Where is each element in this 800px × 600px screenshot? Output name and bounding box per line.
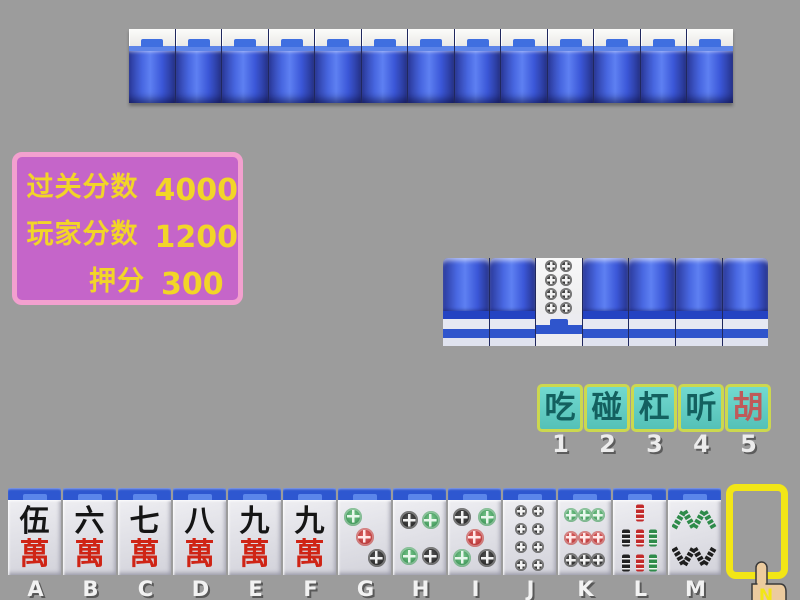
wan-bottom-char: 萬 [228, 540, 281, 570]
black-dot [545, 274, 557, 286]
green-dot [564, 508, 578, 522]
meld-tile-back [443, 258, 490, 346]
hotkey-number-1: 1 [537, 430, 584, 458]
red-bamboo-stick [636, 504, 644, 521]
opponent-tile-back [176, 29, 223, 103]
green-dot [400, 547, 418, 565]
opponent-tile-back [129, 29, 176, 103]
meld-tile-back [490, 258, 537, 346]
red-dot [564, 531, 578, 545]
black-dot [532, 541, 544, 553]
wan-top-char: 九 [283, 507, 336, 537]
mahjong-game-screen: 过关分数 4000 玩家分数 1200 押分 300 吃碰杠听胡 12345 伍… [0, 0, 800, 600]
pass-score-value: 4000 [155, 176, 239, 206]
opponent-tile-back [548, 29, 595, 103]
green-dot [422, 511, 440, 529]
red-dot [591, 531, 605, 545]
wan-bottom-char: 萬 [283, 540, 336, 570]
meld-tile-back [583, 258, 630, 346]
player-hand-row: 伍萬六萬七萬八萬九萬九萬 [8, 488, 723, 575]
action-button-3[interactable]: 杠 [631, 384, 677, 432]
hotkey-number-row: 12345 [537, 430, 772, 458]
green-dot [578, 508, 592, 522]
hand-cursor-icon: N [740, 560, 792, 600]
black-dot [591, 553, 605, 567]
wan-bottom-char: 萬 [173, 540, 226, 570]
black-dot [560, 260, 572, 272]
black-dot [453, 508, 471, 526]
opponent-tile-back [222, 29, 269, 103]
meld-tile-back [723, 258, 769, 346]
hand-tile-G-3-dots[interactable] [338, 488, 391, 575]
black-dot [532, 505, 544, 517]
hand-tile-C-7-wan[interactable]: 七萬 [118, 488, 171, 575]
red-dot [466, 529, 484, 547]
hand-tile-F-9-wan[interactable]: 九萬 [283, 488, 336, 575]
black-dot [515, 559, 527, 571]
hotkey-number-5: 5 [725, 430, 772, 458]
green-bamboo-stick [649, 555, 657, 572]
opponent-tile-back [362, 29, 409, 103]
meld-tile-row [443, 258, 768, 346]
bamboo-8-glyph [672, 506, 717, 570]
action-button-2[interactable]: 碰 [584, 384, 630, 432]
hand-letter-D: D [173, 577, 228, 600]
green-dot [478, 508, 496, 526]
action-button-5[interactable]: 胡 [725, 384, 771, 432]
wan-bottom-char: 萬 [118, 540, 171, 570]
wan-bottom-char: 萬 [63, 540, 116, 570]
player-score-label: 玩家分数 [17, 212, 139, 251]
black-dot [368, 549, 386, 567]
hand-letter-G: G [338, 577, 393, 600]
hand-letter-B: B [63, 577, 118, 600]
black-dot [578, 553, 592, 567]
black-dot [532, 559, 544, 571]
meld-tile-back [629, 258, 676, 346]
opponent-tile-row [129, 29, 733, 103]
red-bamboo-stick [636, 530, 644, 547]
score-row-player: 玩家分数 1200 [17, 212, 238, 259]
hand-tile-B-6-wan[interactable]: 六萬 [63, 488, 116, 575]
black-dot [560, 288, 572, 300]
hand-letter-K: K [558, 577, 613, 600]
hand-tile-D-8-wan[interactable]: 八萬 [173, 488, 226, 575]
opponent-tile-back [455, 29, 502, 103]
score-panel: 过关分数 4000 玩家分数 1200 押分 300 [12, 152, 243, 305]
green-bamboo-stick [649, 530, 657, 547]
black-dot [532, 523, 544, 535]
opponent-tile-back [687, 29, 733, 103]
wan-top-char: 九 [228, 507, 281, 537]
hand-letter-J: J [503, 577, 558, 600]
meld-tile-back [676, 258, 723, 346]
hand-letter-H: H [393, 577, 448, 600]
black-dot [560, 302, 572, 314]
opponent-tile-back [641, 29, 688, 103]
pass-score-label: 过关分数 [17, 165, 139, 204]
hotkey-number-3: 3 [631, 430, 678, 458]
green-dot [344, 508, 362, 526]
opponent-tile-back [408, 29, 455, 103]
opponent-tile-back [269, 29, 316, 103]
hand-tile-L-7-bamboo[interactable] [613, 488, 666, 575]
hand-letter-A: A [8, 577, 63, 600]
score-row-bet: 押分 300 [17, 259, 238, 306]
wan-top-char: 七 [118, 507, 171, 537]
hand-tile-E-9-wan[interactable]: 九萬 [228, 488, 281, 575]
action-button-row: 吃碰杠听胡 [537, 384, 772, 432]
black-dot [515, 523, 527, 535]
hand-letter-C: C [118, 577, 173, 600]
black-dot [564, 553, 578, 567]
hand-letter-M: M [668, 577, 723, 600]
black-dot [545, 302, 557, 314]
opponent-tile-back [315, 29, 362, 103]
black-dot [515, 541, 527, 553]
bet-score-label: 押分 [17, 259, 145, 298]
green-dot [591, 508, 605, 522]
black-dot [478, 549, 496, 567]
black-dot [545, 288, 557, 300]
meld-tile-faceup-8-dots [536, 258, 583, 346]
hand-letter-E: E [228, 577, 283, 600]
hand-letter-row: ABCDEFGHIJKLM [8, 577, 723, 600]
hand-letter-I: I [448, 577, 503, 600]
hand-tile-J-8-dots[interactable] [503, 488, 556, 575]
action-button-1[interactable]: 吃 [537, 384, 583, 432]
bet-score-value: 300 [161, 270, 224, 300]
hotkey-number-4: 4 [678, 430, 725, 458]
black-bamboo-stick [622, 555, 630, 572]
red-bamboo-stick [636, 555, 644, 572]
black-dot [560, 274, 572, 286]
hand-letter-F: F [283, 577, 338, 600]
hand-tile-K-9-dots[interactable] [558, 488, 611, 575]
red-dot [578, 531, 592, 545]
hand-letter-L: L [613, 577, 668, 600]
wan-top-char: 八 [173, 507, 226, 537]
player-score-value: 1200 [155, 223, 239, 253]
hotkey-number-2: 2 [584, 430, 631, 458]
hand-tile-H-4-dots[interactable] [393, 488, 446, 575]
hand-tile-M-8-bamboo[interactable] [668, 488, 721, 575]
wan-top-char: 六 [63, 507, 116, 537]
hand-tile-I-5-dots[interactable] [448, 488, 501, 575]
opponent-tile-back [594, 29, 641, 103]
black-dot [400, 511, 418, 529]
svg-text:N: N [759, 586, 773, 600]
black-dot [515, 505, 527, 517]
score-row-pass: 过关分数 4000 [17, 165, 238, 212]
hand-tile-A-5-wan[interactable]: 伍萬 [8, 488, 61, 575]
opponent-tile-back [501, 29, 548, 103]
wan-top-char: 伍 [8, 507, 61, 537]
black-dot [545, 260, 557, 272]
black-dot [422, 547, 440, 565]
wan-bottom-char: 萬 [8, 540, 61, 570]
red-dot [356, 528, 374, 546]
action-button-4[interactable]: 听 [678, 384, 724, 432]
black-bamboo-stick [622, 530, 630, 547]
green-dot [453, 549, 471, 567]
